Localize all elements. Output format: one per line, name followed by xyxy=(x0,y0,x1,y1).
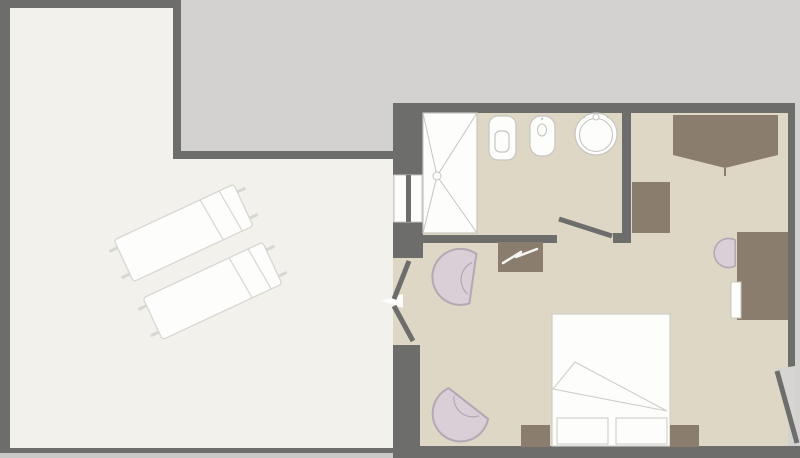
outside-strip-bottom xyxy=(0,453,393,458)
desk-chair-body xyxy=(714,238,735,267)
wall-top-left xyxy=(0,0,181,8)
desk xyxy=(737,232,788,320)
wall-unit-left-upper xyxy=(393,103,423,175)
sink-tap-handle xyxy=(583,116,585,118)
bidet-tap-icon xyxy=(541,118,543,120)
bathroom-window xyxy=(394,175,422,222)
desk-shelf xyxy=(731,282,741,318)
wall-unit-left-lower xyxy=(393,345,420,452)
wall-unit-top xyxy=(393,103,795,113)
wall-divider-vertical xyxy=(173,0,181,159)
pillow-right xyxy=(616,418,667,444)
sink-tap-handle xyxy=(607,116,609,118)
floor-plan xyxy=(0,0,800,458)
window-mullion xyxy=(406,175,411,222)
pillow-left xyxy=(557,418,608,444)
toilet-body xyxy=(489,116,516,160)
side-cabinet xyxy=(632,182,670,233)
sink-faucet-icon xyxy=(593,114,599,120)
nightstand-right xyxy=(670,425,699,447)
bidet-icon xyxy=(530,116,555,156)
wall-divider-horizontal xyxy=(173,151,400,159)
shower xyxy=(423,113,477,233)
desk-chair xyxy=(714,238,735,267)
double-bed xyxy=(552,314,670,446)
sink-icon xyxy=(575,113,617,155)
wall-left xyxy=(0,0,10,453)
shower-tray xyxy=(423,113,477,233)
toilet-icon xyxy=(489,116,516,160)
wall-terrace-bottom xyxy=(0,448,393,453)
nightstand-left xyxy=(521,425,550,447)
wall-unit-left-mid xyxy=(393,222,423,258)
luggage-bench xyxy=(498,242,543,272)
wall-unit-right xyxy=(788,103,795,367)
shower-drain-icon xyxy=(433,172,441,180)
wall-bathroom-bottom xyxy=(423,235,557,243)
wall-bathroom-divider xyxy=(622,113,631,235)
wall-unit-bottom xyxy=(393,446,800,458)
luggage-bench-top xyxy=(498,242,543,272)
